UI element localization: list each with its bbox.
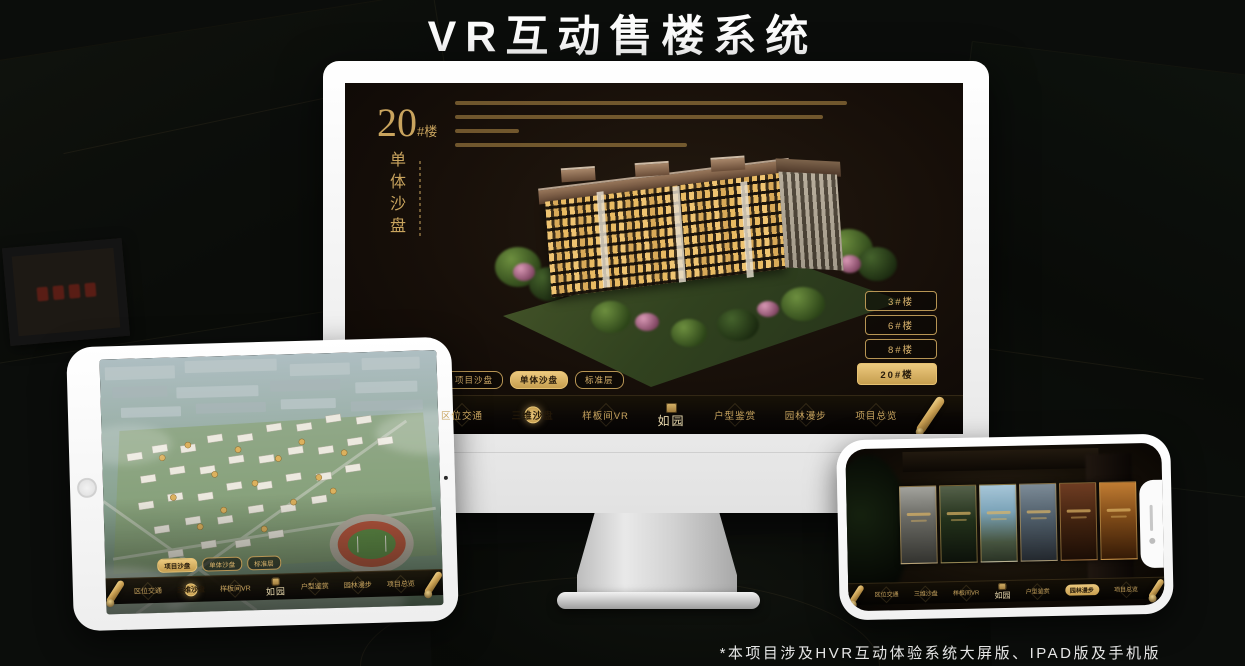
gallery-panel[interactable] — [939, 485, 978, 564]
floor-button-6[interactable]: 6#楼 — [865, 315, 937, 335]
roof-gable — [561, 166, 596, 182]
building-side — [779, 172, 844, 271]
building-number: 20 — [377, 100, 417, 145]
tree — [591, 301, 631, 333]
nav-item-project-overview[interactable]: 项目总览 — [855, 408, 897, 422]
scroll-menu-icon[interactable] — [848, 584, 865, 606]
tree — [671, 319, 707, 347]
nav-item-3d-sandbox[interactable]: 三维沙盘 — [512, 408, 554, 422]
page-title: VR互动售楼系统 — [0, 2, 1245, 64]
description-text-line — [455, 115, 823, 119]
scroll-menu-icon[interactable] — [106, 579, 126, 605]
scroll-menu-icon[interactable] — [915, 395, 946, 434]
scroll-menu-icon[interactable] — [1148, 577, 1165, 599]
subtab-project-sandbox[interactable]: 项目沙盘 — [157, 558, 197, 573]
building-3d-view[interactable] — [495, 151, 915, 391]
tablet-screen: 项目沙盘 单体沙盘 标准层 区位交通 三维沙盘 样板间VR 如园 户型鉴赏 园林… — [99, 350, 443, 614]
subtab-standard-floor[interactable]: 标准层 — [575, 371, 624, 389]
tree — [857, 247, 897, 281]
nav-item-project-overview[interactable]: 项目总览 — [387, 578, 415, 589]
background-award-plaque — [2, 238, 130, 346]
description-text-line — [455, 143, 687, 147]
brand-logo-text: 如园 — [266, 587, 286, 597]
nav-item-garden-walk[interactable]: 园林漫步 — [1065, 584, 1099, 596]
building-headline: 20#楼 单体沙盘 — [377, 103, 479, 239]
brand-seal-icon — [666, 403, 677, 413]
nav-item-location[interactable]: 区位交通 — [874, 589, 898, 599]
nav-item-garden-walk[interactable]: 园林漫步 — [785, 408, 827, 422]
nav-item-3d-sandbox[interactable]: 三维沙盘 — [177, 584, 205, 595]
footnote-text: *本项目涉及HVR互动体验系统大屏版、IPAD版及手机版 — [720, 642, 1161, 663]
roof-gable — [635, 161, 670, 177]
gallery-panel[interactable] — [899, 485, 938, 564]
gallery-panel[interactable] — [1059, 482, 1098, 561]
nav-item-location[interactable]: 区位交通 — [134, 585, 162, 596]
nav-item-floorplans[interactable]: 户型鉴赏 — [1026, 586, 1050, 596]
subtab-single-sandbox[interactable]: 单体沙盘 — [202, 557, 242, 572]
floor-button-3[interactable]: 3#楼 — [865, 291, 937, 311]
description-text-line — [455, 101, 847, 105]
nav-item-showroom-vr[interactable]: 样板间VR — [953, 588, 980, 598]
flower-shrub — [635, 313, 659, 331]
scene-gate-beam — [902, 448, 1098, 472]
nav-item-project-overview[interactable]: 项目总览 — [1114, 584, 1138, 594]
subtab-standard-floor[interactable]: 标准层 — [247, 556, 281, 571]
phone-device: 区位交通 三维沙盘 样板间VR 如园 户型鉴赏 园林漫步 项目总览 — [836, 434, 1174, 621]
nav-item-showroom-vr[interactable]: 样板间VR — [220, 583, 251, 594]
nav-item-showroom-vr[interactable]: 样板间VR — [582, 408, 629, 422]
building-model — [543, 149, 851, 300]
camera-icon — [1149, 537, 1155, 543]
building-number-suffix: #楼 — [417, 124, 437, 139]
brand-logo: 如园 — [994, 583, 1010, 600]
home-button[interactable] — [77, 478, 98, 499]
vertical-caption-decoration — [419, 161, 421, 239]
floor-button-20[interactable]: 20#楼 — [857, 363, 937, 385]
subtab-single-sandbox[interactable]: 单体沙盘 — [510, 371, 568, 389]
nav-item-floorplans[interactable]: 户型鉴赏 — [301, 581, 329, 592]
speaker-icon — [1150, 504, 1154, 530]
gallery-panel[interactable] — [1019, 483, 1058, 562]
flower-shrub — [513, 263, 535, 281]
monitor-stand-base — [557, 592, 760, 609]
roof-gable — [710, 156, 745, 172]
flower-shrub — [757, 301, 779, 317]
nav-item-floorplans[interactable]: 户型鉴赏 — [714, 408, 756, 422]
nav-item-3d-sandbox[interactable]: 三维沙盘 — [914, 588, 938, 598]
floor-button-8[interactable]: 8#楼 — [865, 339, 937, 359]
phone-notch — [1139, 480, 1164, 568]
nav-item-location[interactable]: 区位交通 — [441, 408, 483, 422]
tree — [717, 309, 759, 341]
monitor-stand — [577, 513, 737, 597]
description-text-line — [455, 129, 519, 133]
scroll-menu-icon[interactable] — [423, 570, 443, 596]
brand-seal-icon — [999, 583, 1007, 590]
camera-icon — [444, 476, 448, 480]
brand-logo: 如园 — [658, 403, 686, 427]
brand-seal-icon — [271, 578, 280, 585]
section-title-vertical: 单体沙盘 — [383, 151, 407, 239]
subtab-project-sandbox[interactable]: 项目沙盘 — [445, 371, 503, 389]
brand-logo-text: 如园 — [658, 415, 686, 427]
tablet-device: 项目沙盘 单体沙盘 标准层 区位交通 三维沙盘 样板间VR 如园 户型鉴赏 园林… — [66, 337, 459, 632]
floor-button-group: 3#楼 6#楼 8#楼 20#楼 — [857, 291, 937, 385]
gallery-panel[interactable] — [979, 484, 1018, 563]
phone-screen: 区位交通 三维沙盘 样板间VR 如园 户型鉴赏 园林漫步 项目总览 — [845, 443, 1164, 612]
sandbox-subtabs: 项目沙盘 单体沙盘 标准层 — [445, 371, 624, 389]
gallery-panel[interactable] — [1099, 481, 1138, 560]
tree — [781, 287, 825, 321]
brand-logo-text: 如园 — [994, 592, 1010, 600]
nav-item-garden-walk[interactable]: 园林漫步 — [344, 579, 372, 590]
brand-logo: 如园 — [265, 578, 286, 597]
